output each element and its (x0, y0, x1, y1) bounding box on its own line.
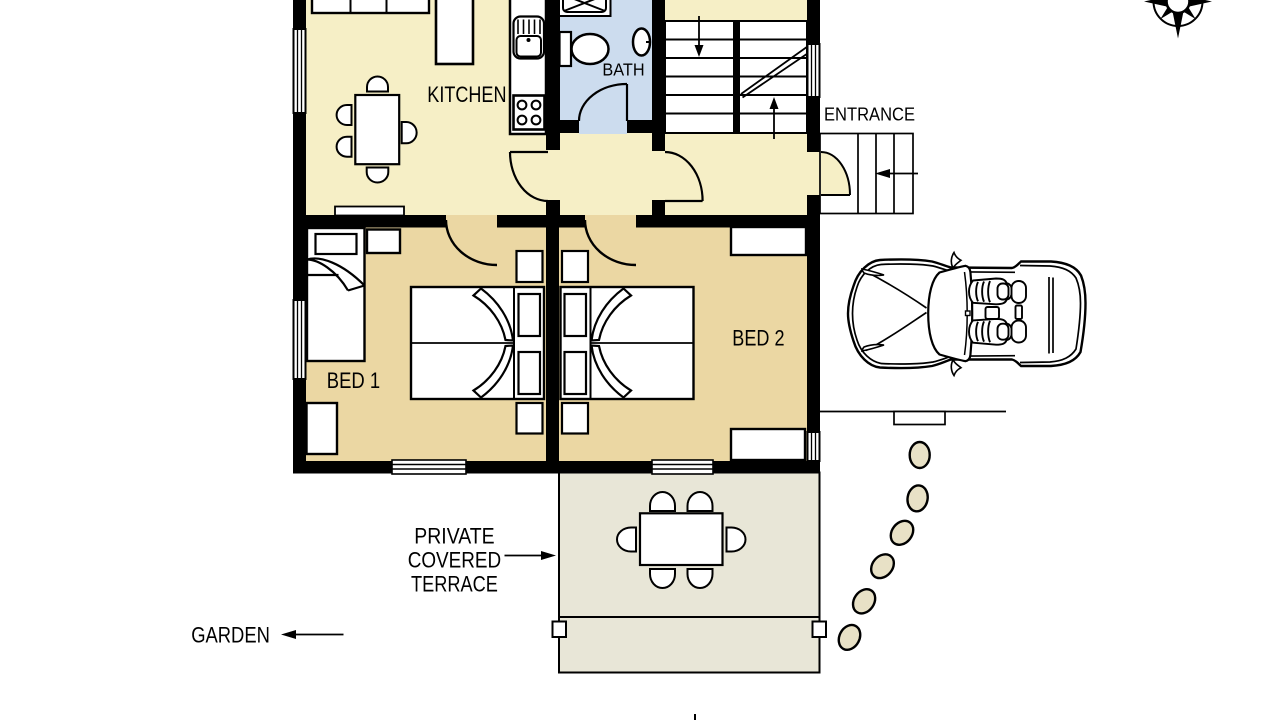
svg-text:GARDEN: GARDEN (191, 623, 270, 648)
svg-text:BED 1: BED 1 (327, 368, 380, 393)
svg-text:KITCHEN: KITCHEN (427, 82, 506, 107)
svg-text:ENTRANCE: ENTRANCE (824, 103, 915, 124)
svg-text:BATH: BATH (602, 60, 644, 80)
svg-text:TERRACE: TERRACE (411, 571, 498, 596)
svg-text:BED 2: BED 2 (732, 325, 784, 350)
svg-text:COVERED: COVERED (408, 548, 502, 573)
svg-text:PRIVATE: PRIVATE (414, 524, 494, 549)
